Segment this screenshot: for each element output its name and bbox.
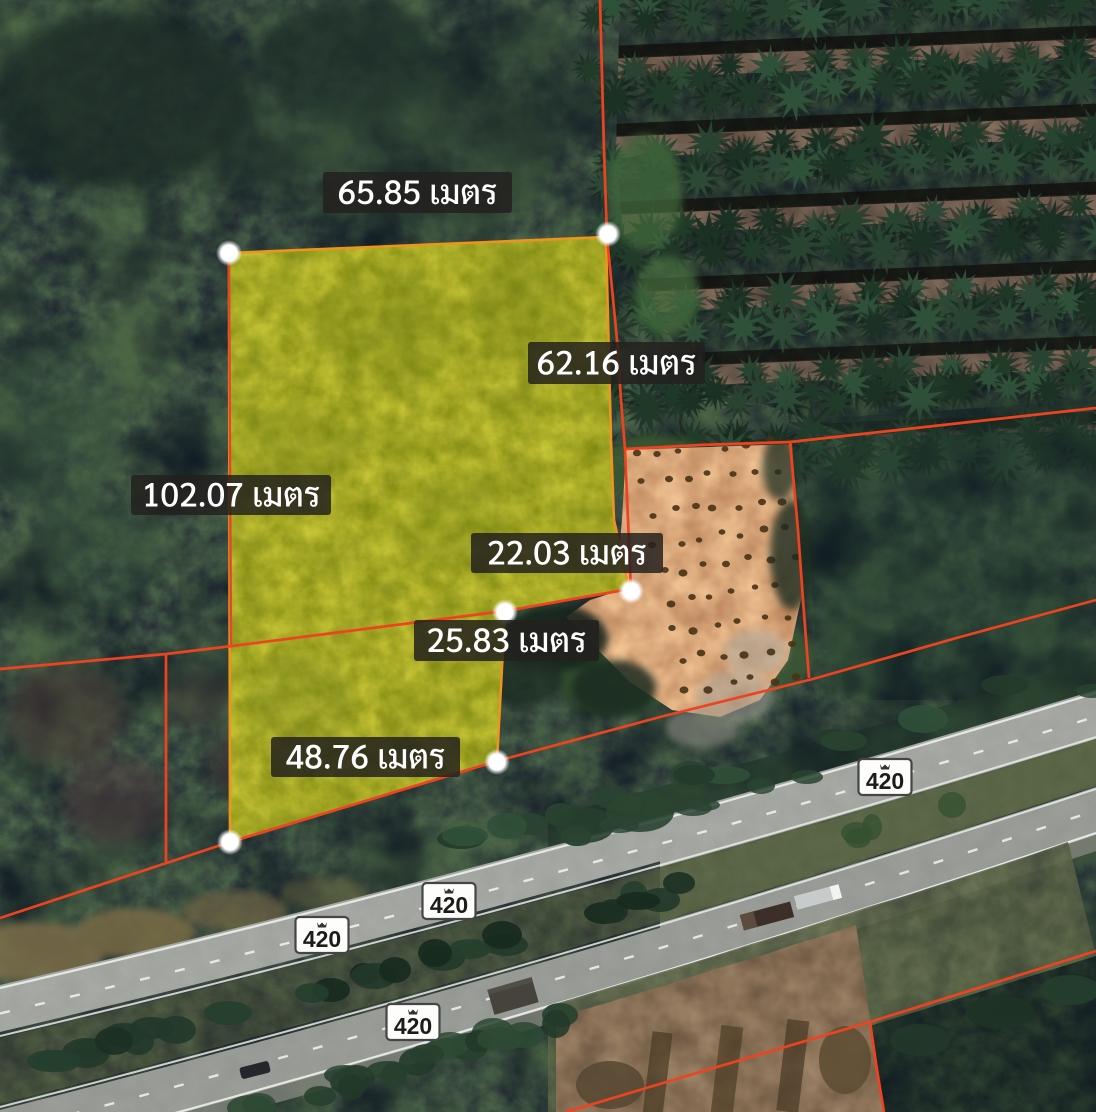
- svg-text:420: 420: [866, 768, 904, 794]
- svg-text:420: 420: [394, 1013, 432, 1039]
- svg-text:420: 420: [430, 892, 468, 918]
- svg-text:420: 420: [303, 926, 341, 952]
